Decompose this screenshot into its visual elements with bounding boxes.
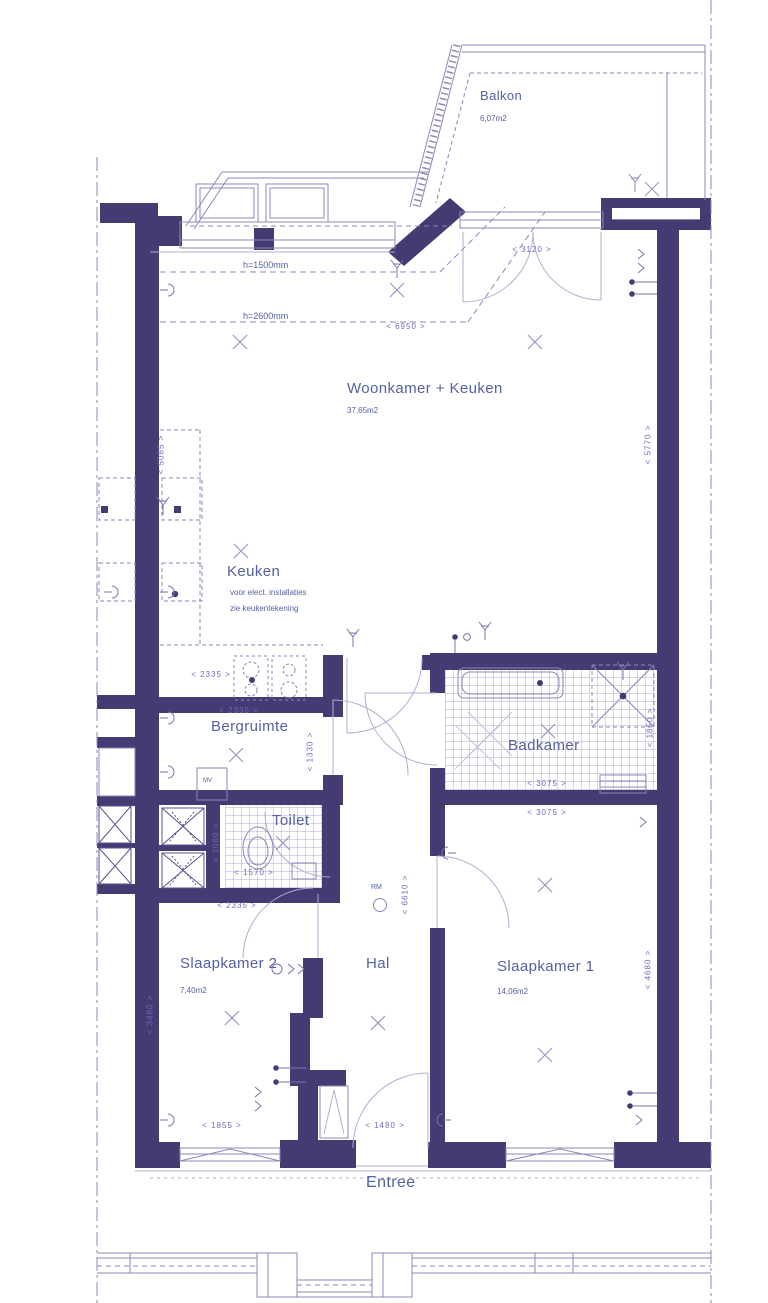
- dim-badkamer-width: < 3075 >: [514, 779, 580, 788]
- dim-badkamer-height: < 1850 >: [646, 698, 655, 758]
- labels-layer: Balkon 6,07m2 h=1500mm h=2600mm < 3120 >…: [0, 0, 768, 1303]
- area-label-slaapkamer1: 14,06m2: [497, 987, 528, 996]
- dim-bergruimte-height: < 1330 >: [306, 722, 315, 782]
- rm-label: RM: [371, 884, 382, 891]
- dim-slaapkamer2-height: < 3480 >: [146, 985, 155, 1045]
- room-label-hal: Hal: [366, 955, 390, 972]
- dim-living-right-height: < 5770 >: [644, 415, 653, 475]
- area-label-balkon: 6,07m2: [480, 114, 507, 123]
- room-label-toilet: Toilet: [272, 812, 309, 829]
- dim-living-left-height: < 5085 >: [157, 425, 166, 485]
- keuken-note-2: zie keukentekening: [230, 604, 299, 613]
- room-label-slaapkamer2: Slaapkamer 2: [180, 955, 277, 972]
- dim-balcony-door: < 3120 >: [499, 245, 565, 254]
- room-label-bergruimte: Bergruimte: [211, 718, 288, 735]
- dim-slaapkamer1-height: < 4680 >: [644, 940, 653, 1000]
- dim-hal-height: < 6610 >: [401, 865, 410, 925]
- keuken-note-1: voor elect. installaties: [230, 588, 306, 597]
- floorplan: Balkon 6,07m2 h=1500mm h=2600mm < 3120 >…: [0, 0, 768, 1303]
- dim-bergruimte-width: < 2335 >: [206, 706, 272, 715]
- room-label-badkamer: Badkamer: [508, 737, 580, 754]
- height-label-ceiling: h=2600mm: [243, 311, 288, 321]
- room-label-balkon: Balkon: [480, 88, 522, 103]
- dim-toilet-width: < 1570 >: [221, 868, 287, 877]
- height-label-window: h=1500mm: [243, 260, 288, 270]
- room-label-entree: Entree: [366, 1174, 416, 1192]
- dim-entree-door: < 1480 >: [352, 1121, 418, 1130]
- mv-label: MV: [203, 778, 212, 784]
- dim-living-width: < 6950 >: [373, 322, 439, 331]
- area-label-woonkamer: 37,65m2: [347, 406, 378, 415]
- dim-toilet-height: < 1060 >: [212, 813, 221, 873]
- area-label-slaapkamer2: 7,40m2: [180, 986, 207, 995]
- room-label-slaapkamer1: Slaapkamer 1: [497, 958, 594, 975]
- room-label-keuken: Keuken: [227, 563, 280, 580]
- dim-keuken-width: < 2335 >: [178, 670, 244, 679]
- dim-slaapkamer2-width: < 2335 >: [204, 901, 270, 910]
- room-label-woonkamer: Woonkamer + Keuken: [347, 380, 503, 397]
- dim-slaapkamer1-width: < 3075 >: [514, 808, 580, 817]
- dim-slaapkamer2-window: < 1855 >: [189, 1121, 255, 1130]
